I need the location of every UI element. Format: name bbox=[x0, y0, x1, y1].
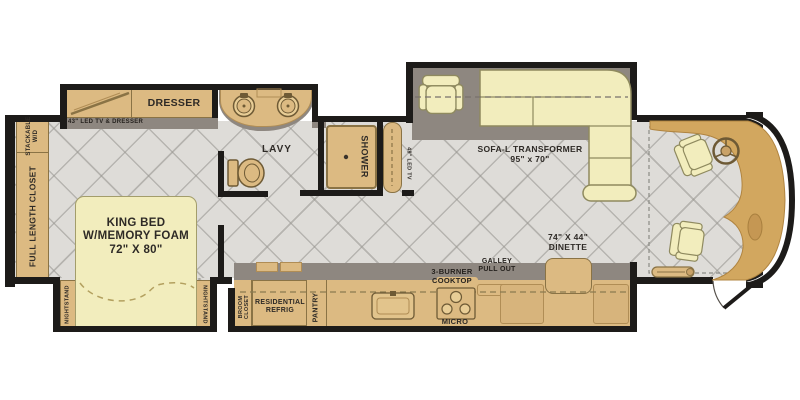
wall-sofaslide-top bbox=[406, 62, 637, 68]
wall-vanity-top bbox=[218, 84, 318, 90]
wall-bedslideout-left bbox=[60, 84, 67, 129]
wall-bedslide-bottom bbox=[53, 326, 217, 332]
wall-top-left bbox=[5, 115, 67, 122]
wall-kitchen-slideout-bottom bbox=[228, 326, 637, 332]
wall-toilet-horizontal bbox=[222, 191, 268, 197]
wall-bottom-front bbox=[637, 277, 713, 284]
wall-shower-top bbox=[312, 116, 413, 122]
wall-kitchen-slideout-right bbox=[630, 262, 637, 332]
wall-sofaslide-right bbox=[630, 62, 637, 120]
nightstand-left bbox=[60, 280, 76, 328]
wall-bedslideout-top bbox=[60, 84, 218, 90]
rv-floorplan: STACKABLE W/D FULL LENGTH CLOSET DRESSER… bbox=[0, 0, 800, 400]
wall-shower-right bbox=[377, 122, 383, 192]
dresser bbox=[131, 89, 215, 118]
wall-shower-left bbox=[318, 122, 324, 192]
refrig-door-left bbox=[256, 262, 278, 272]
wall-top-front bbox=[637, 115, 752, 122]
wall-rear-left bbox=[5, 115, 15, 287]
tv-dresser-shelf-strip bbox=[64, 117, 218, 129]
wall-sofaslide-left bbox=[406, 62, 413, 123]
wall-bottom-left bbox=[5, 277, 55, 284]
cooktop-counter-bump bbox=[436, 277, 478, 289]
refrig-door-right bbox=[280, 262, 302, 272]
king-bed bbox=[75, 196, 197, 328]
pantry-box bbox=[307, 280, 327, 326]
tv-cabinet-bedroom bbox=[65, 89, 133, 118]
wall-bedslide-left bbox=[53, 277, 60, 332]
dinette-bench-left bbox=[500, 284, 544, 324]
dinette-bench-right bbox=[593, 284, 629, 324]
wall-bedroom-divider bbox=[218, 225, 224, 278]
sofa-slideout-band bbox=[412, 67, 631, 140]
broom-closet-box bbox=[236, 280, 252, 326]
windshield-pillar-top bbox=[746, 112, 763, 128]
dinette-table bbox=[545, 258, 592, 294]
shower-pan bbox=[326, 125, 377, 189]
full-length-closet bbox=[16, 152, 49, 281]
windshield-pillar-bottom bbox=[746, 272, 763, 288]
wall-shower-bottom bbox=[300, 190, 383, 196]
refrigerator-box bbox=[252, 280, 307, 326]
wall-tv-stub bbox=[402, 190, 414, 196]
wall-bedslide-right bbox=[210, 277, 217, 332]
wall-bottom-stub bbox=[210, 277, 232, 284]
stackable-washer-dryer bbox=[16, 118, 49, 154]
tv-cabinet-49 bbox=[383, 122, 402, 193]
